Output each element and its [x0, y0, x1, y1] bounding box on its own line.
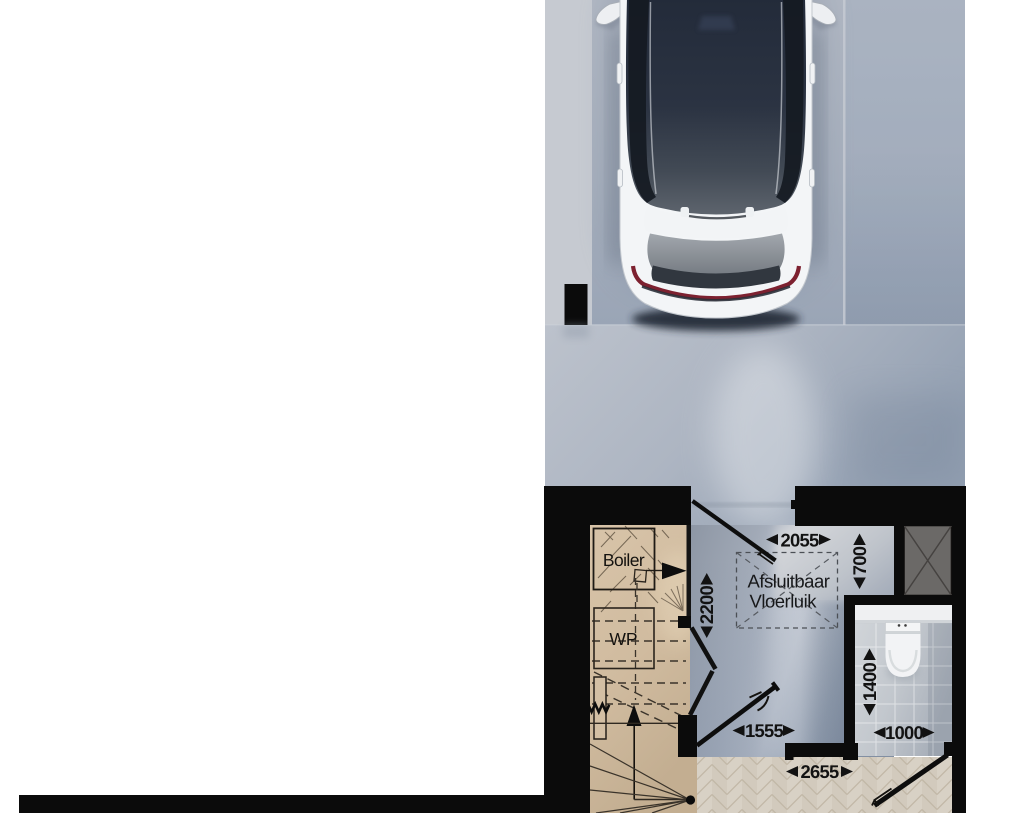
svg-text:1555: 1555: [745, 720, 784, 741]
svg-text:2055: 2055: [780, 530, 819, 551]
svg-text:2655: 2655: [800, 761, 839, 782]
svg-text:700: 700: [849, 546, 870, 575]
svg-text:Afsluitbaar: Afsluitbaar: [748, 571, 830, 592]
svg-text:Boiler: Boiler: [603, 550, 645, 570]
svg-text:WP: WP: [609, 629, 637, 649]
svg-text:2200: 2200: [696, 585, 717, 624]
svg-text:Vloerluik: Vloerluik: [750, 591, 818, 612]
svg-text:1000: 1000: [885, 722, 924, 743]
svg-text:1400: 1400: [859, 662, 880, 701]
